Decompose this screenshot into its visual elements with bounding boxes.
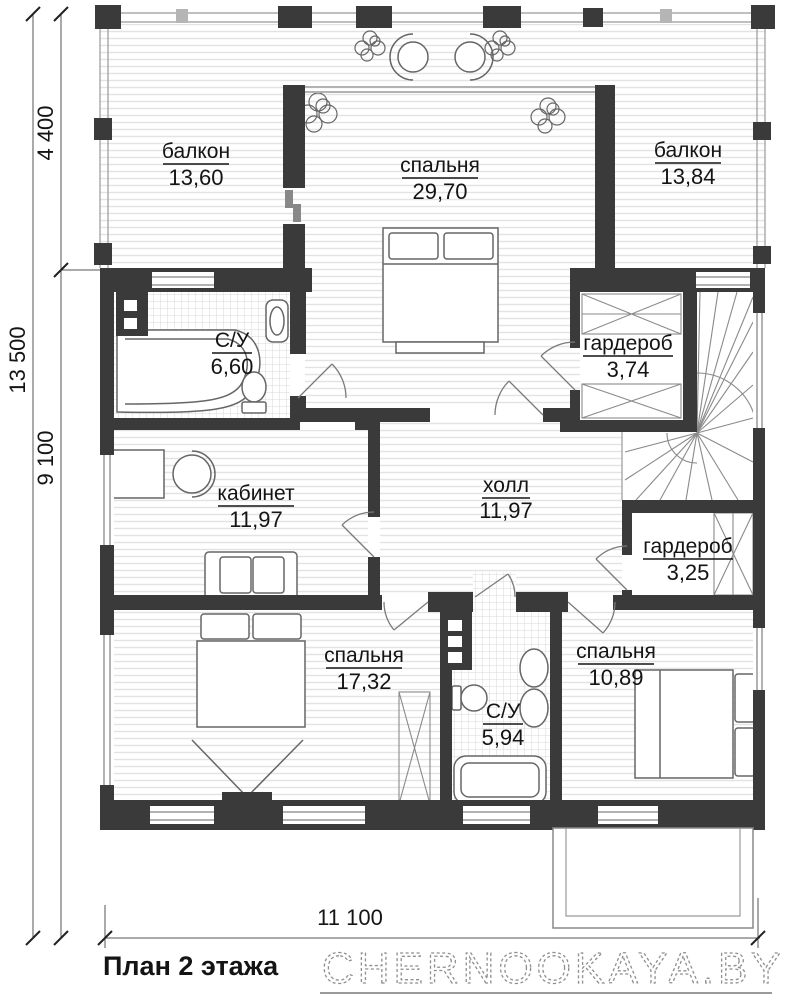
room-label-hall: холл [483,474,529,497]
window [753,628,765,690]
desk-symbol [112,450,164,498]
window [150,806,214,824]
room-area-office: 11,97 [229,507,282,532]
room-area-bathroom-bottom: 5,94 [482,725,525,750]
dim-bottom: 11 100 [317,905,383,930]
bedroom-main-furniture [383,228,498,353]
room-label-bathroom-bottom: С/У [486,700,521,723]
toilet-icon [452,685,487,711]
sofa-symbol [205,552,297,600]
window [100,635,114,785]
room-area-wardrobe-bottom: 3,25 [667,560,710,585]
room-label-balcony-right: балкон [654,139,722,162]
room-label-wardrobe-top: гардероб [583,332,672,355]
porch-outline [553,828,753,928]
room-area-bedroom-main: 29,70 [412,179,467,204]
window [283,806,365,824]
room-area-balcony-right: 13,84 [660,164,715,189]
room-label-bedroom-main: спальня [400,154,480,177]
room-area-bedroom-right: 10,89 [588,665,643,690]
window [100,455,114,545]
room-area-balcony-left: 13,60 [168,165,223,190]
bed-symbol [383,228,498,353]
room-label-wardrobe-bottom: гардероб [643,535,732,558]
room-label-bathroom-top: С/У [215,329,250,352]
room-label-balcony-left: балкон [162,140,230,163]
plan-title: План 2 этажа [103,951,279,981]
room-area-bedroom-left: 17,32 [336,669,391,694]
room-area-wardrobe-top: 3,74 [607,357,650,382]
room-label-office: кабинет [217,482,295,505]
window [598,806,658,824]
dim-left-total: 13 500 [5,326,30,393]
floor-plan-page: 13 500 4 400 9 100 11 100 балкон 13,60 с… [0,0,785,1000]
dim-left-bottom: 9 100 [33,430,58,485]
boiler-symbol [116,292,148,336]
room-area-bathroom-top: 6,60 [211,354,254,379]
sink-icon [266,300,288,342]
room-label-bedroom-right: спальня [576,640,656,663]
vent-shaft-symbol [440,612,472,670]
bath-symbol [454,756,546,804]
window [463,806,530,824]
room-label-bedroom-left: спальня [324,644,404,667]
window [696,272,750,288]
window [152,272,214,288]
watermark-text: CHERNOOKAYA.BY [322,944,785,993]
floor-plan-drawing: 13 500 4 400 9 100 11 100 балкон 13,60 с… [0,0,785,1000]
window [753,313,765,428]
dim-left-top: 4 400 [33,105,58,160]
room-area-hall: 11,97 [479,498,532,523]
watermark: CHERNOOKAYA.BY [320,944,785,993]
